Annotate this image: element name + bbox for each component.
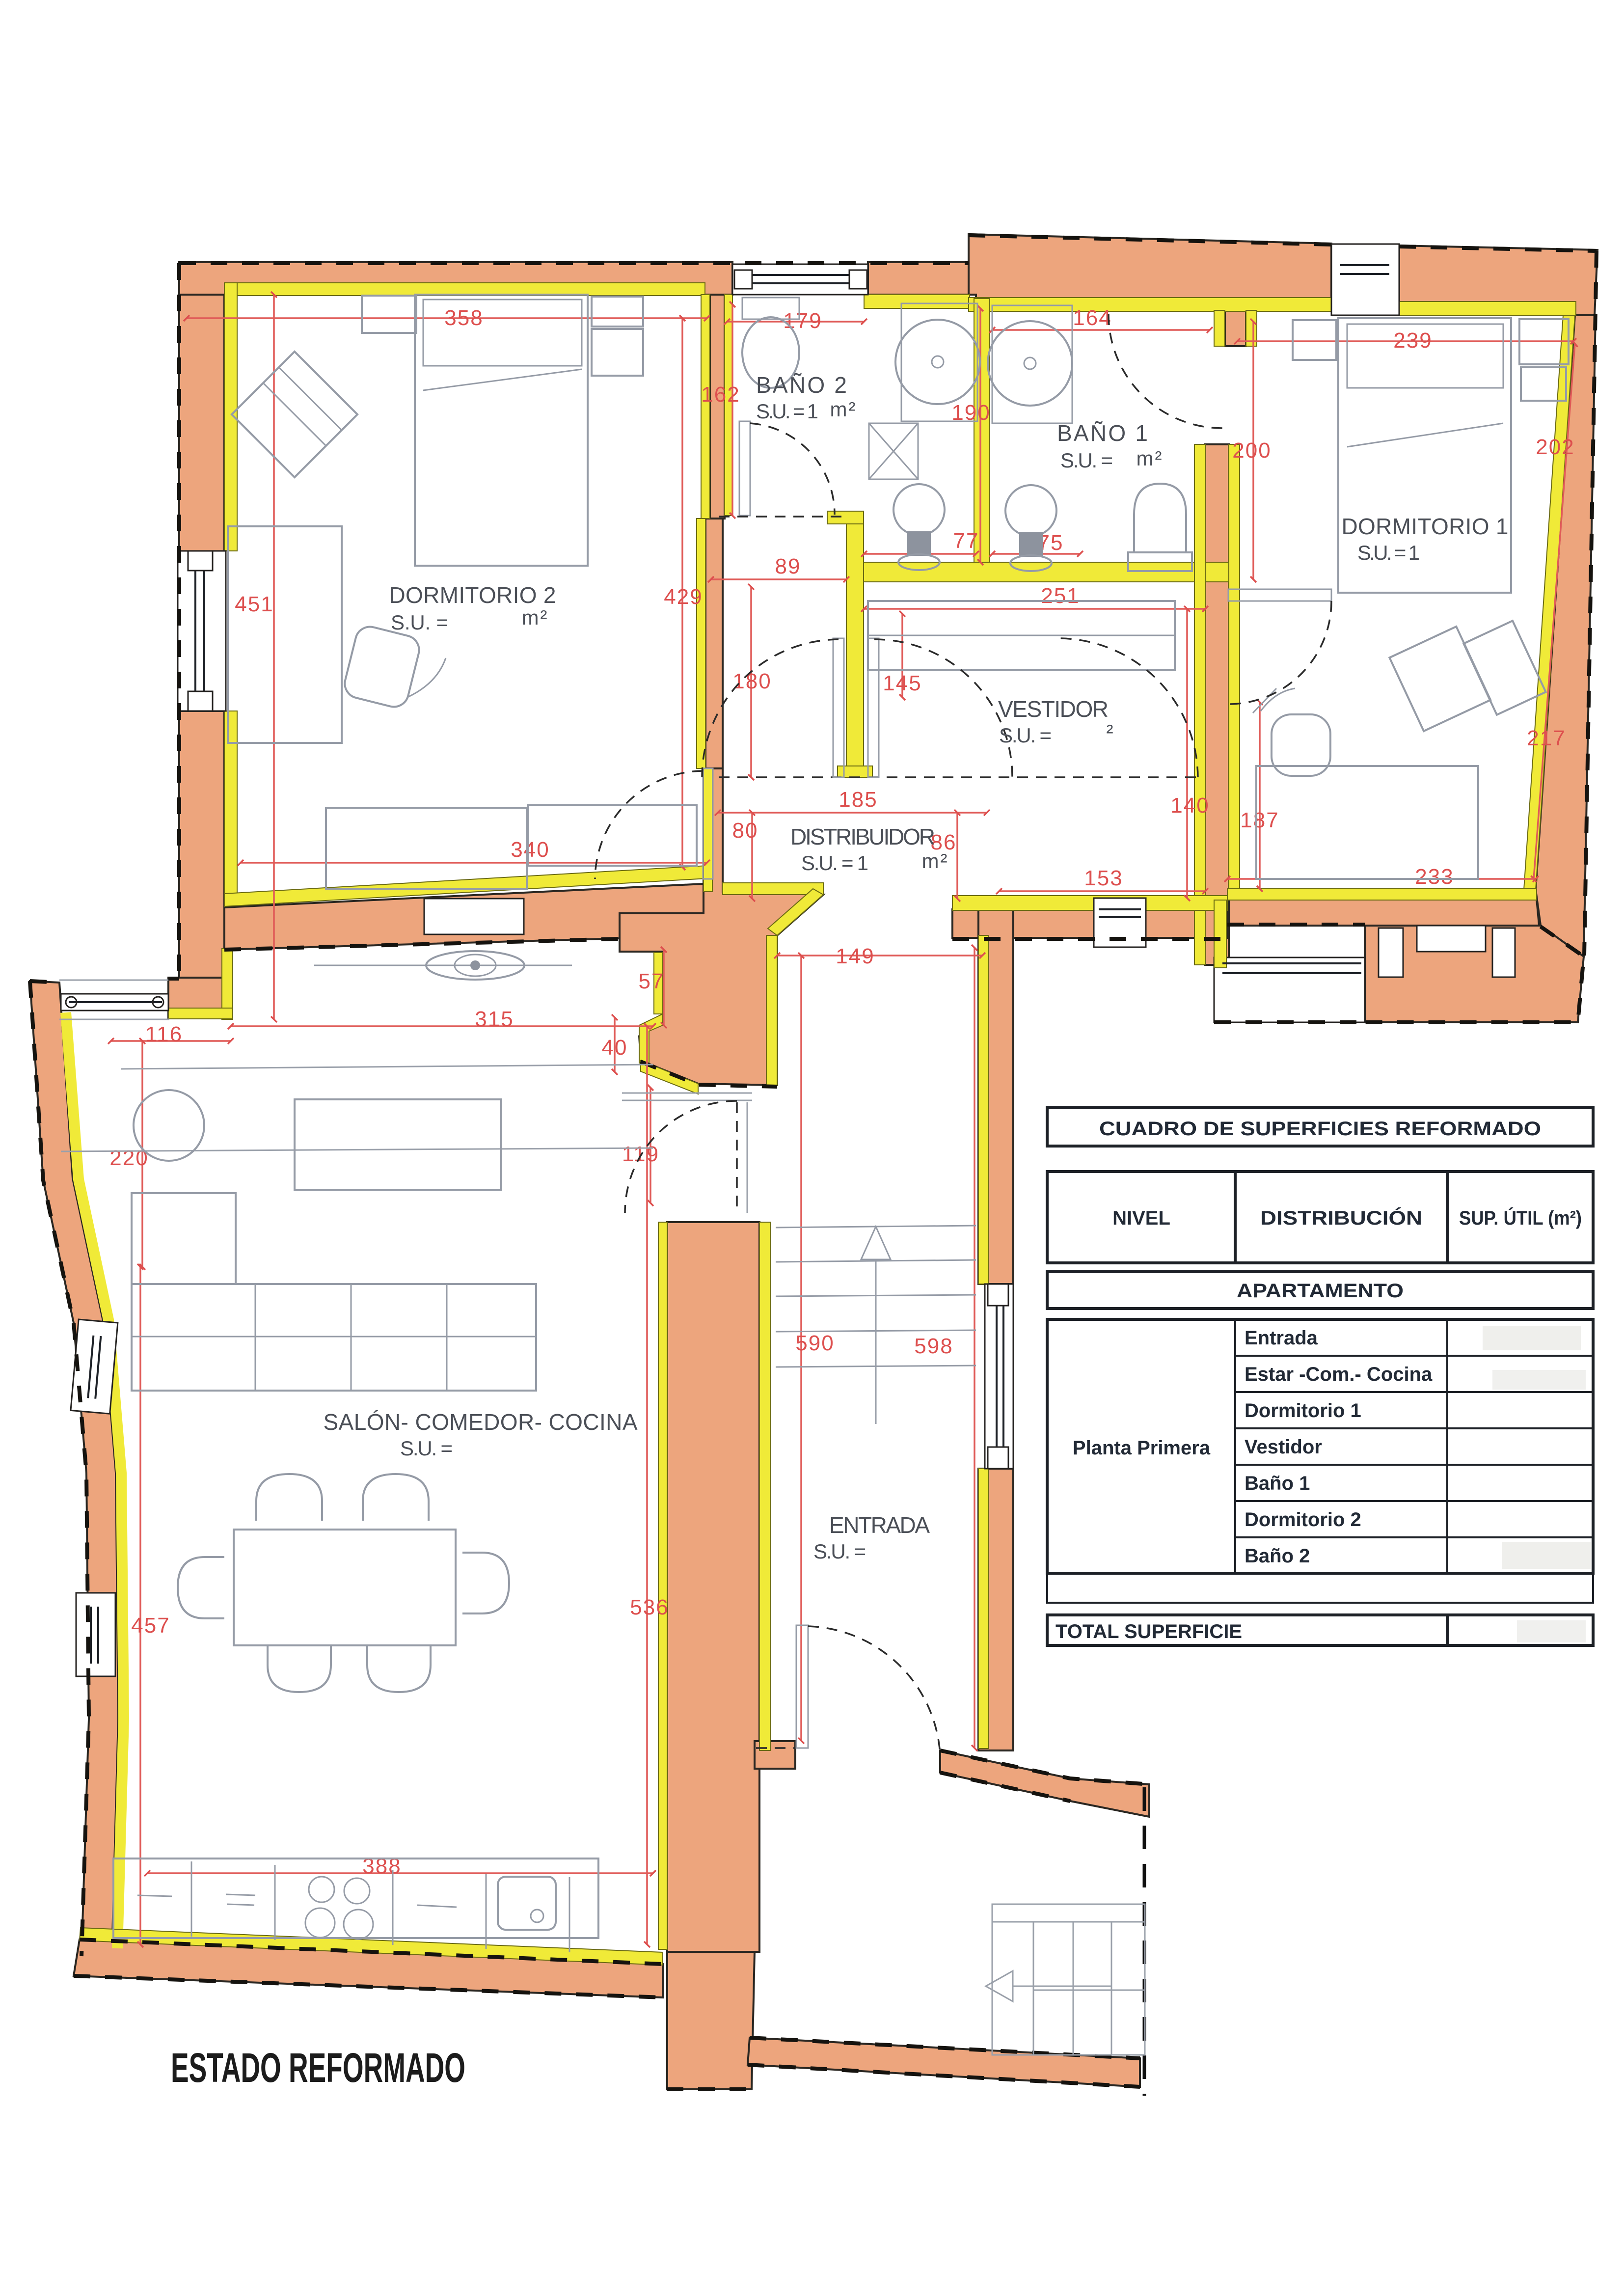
svg-text:²: ² xyxy=(1107,720,1115,743)
svg-text:ENTRADA: ENTRADA xyxy=(829,1512,932,1538)
svg-text:358: 358 xyxy=(444,306,483,330)
svg-text:162: 162 xyxy=(701,383,740,407)
svg-text:Entrada: Entrada xyxy=(1245,1327,1318,1349)
svg-text:Baño 1: Baño 1 xyxy=(1245,1473,1310,1494)
svg-text:S.U. =: S.U. = xyxy=(391,611,450,634)
svg-text:217: 217 xyxy=(1527,726,1566,750)
svg-text:180: 180 xyxy=(732,669,771,693)
svg-text:S.U. = 1: S.U. = 1 xyxy=(756,400,820,423)
svg-text:153: 153 xyxy=(1084,866,1123,890)
svg-text:164: 164 xyxy=(1073,306,1111,330)
svg-text:S.U. =: S.U. = xyxy=(1060,449,1114,472)
svg-text:149: 149 xyxy=(836,944,874,968)
svg-text:VESTIDOR: VESTIDOR xyxy=(998,696,1111,722)
svg-text:251: 251 xyxy=(1041,584,1080,608)
svg-text:DISTRIBUCIÓN: DISTRIBUCIÓN xyxy=(1260,1206,1422,1229)
svg-text:SALÓN- COMEDOR- COCINA: SALÓN- COMEDOR- COCINA xyxy=(324,1409,640,1435)
svg-text:187: 187 xyxy=(1240,808,1279,832)
svg-text:Estar -Com.- Cocina: Estar -Com.- Cocina xyxy=(1245,1364,1433,1385)
svg-text:CUADRO DE SUPERFICIES REFORMAD: CUADRO DE SUPERFICIES REFORMADO xyxy=(1099,1118,1541,1140)
svg-text:DORMITORIO 1: DORMITORIO 1 xyxy=(1342,514,1511,539)
svg-text:ESTADO REFORMADO: ESTADO REFORMADO xyxy=(171,2045,465,2091)
svg-text:239: 239 xyxy=(1393,328,1432,353)
svg-text:233: 233 xyxy=(1415,865,1454,889)
svg-text:m²: m² xyxy=(1137,447,1164,470)
svg-text:89: 89 xyxy=(775,554,801,578)
svg-text:m²: m² xyxy=(522,606,549,629)
svg-text:Planta Primera: Planta Primera xyxy=(1073,1437,1211,1459)
svg-text:315: 315 xyxy=(475,1007,514,1031)
svg-text:185: 185 xyxy=(839,788,877,812)
svg-text:598: 598 xyxy=(914,1334,953,1358)
svg-text:Dormitorio 1: Dormitorio 1 xyxy=(1245,1400,1361,1421)
svg-text:340: 340 xyxy=(511,838,549,862)
svg-text:m²: m² xyxy=(922,849,949,873)
svg-text:Vestidor: Vestidor xyxy=(1245,1436,1322,1458)
svg-text:Baño 2: Baño 2 xyxy=(1245,1545,1310,1567)
svg-text:DORMITORIO 2: DORMITORIO 2 xyxy=(389,582,559,608)
svg-text:BAÑO 2: BAÑO 2 xyxy=(756,372,849,398)
svg-text:40: 40 xyxy=(602,1036,628,1060)
svg-text:S.U. =: S.U. = xyxy=(813,1540,867,1563)
svg-text:m²: m² xyxy=(830,398,857,421)
svg-text:200: 200 xyxy=(1232,438,1271,463)
svg-text:451: 451 xyxy=(235,592,273,616)
svg-text:BAÑO 1: BAÑO 1 xyxy=(1057,420,1150,446)
svg-text:S.U. = 1: S.U. = 1 xyxy=(1357,541,1421,564)
svg-text:SUP. ÚTIL (m²): SUP. ÚTIL (m²) xyxy=(1459,1206,1582,1229)
svg-text:S.U. = 1: S.U. = 1 xyxy=(801,851,870,875)
svg-text:116: 116 xyxy=(145,1022,183,1046)
svg-text:140: 140 xyxy=(1170,793,1209,818)
svg-text:77: 77 xyxy=(953,529,979,553)
svg-text:429: 429 xyxy=(664,585,703,609)
svg-text:202: 202 xyxy=(1536,435,1574,459)
svg-text:536: 536 xyxy=(630,1595,669,1619)
svg-text:80: 80 xyxy=(732,819,758,843)
svg-text:DISTRIBUIDOR: DISTRIBUIDOR xyxy=(790,824,938,849)
svg-text:NIVEL: NIVEL xyxy=(1112,1207,1170,1229)
svg-text:590: 590 xyxy=(795,1331,834,1355)
svg-text:S.U. =: S.U. = xyxy=(400,1437,454,1460)
svg-text:57: 57 xyxy=(639,969,665,993)
svg-text:APARTAMENTO: APARTAMENTO xyxy=(1237,1280,1404,1302)
svg-text:457: 457 xyxy=(131,1613,170,1638)
svg-text:179: 179 xyxy=(783,309,822,333)
svg-text:TOTAL SUPERFICIE: TOTAL SUPERFICIE xyxy=(1056,1621,1242,1642)
svg-text:S.U. =: S.U. = xyxy=(999,724,1053,747)
svg-text:145: 145 xyxy=(883,671,921,695)
svg-text:Dormitorio 2: Dormitorio 2 xyxy=(1245,1509,1361,1531)
